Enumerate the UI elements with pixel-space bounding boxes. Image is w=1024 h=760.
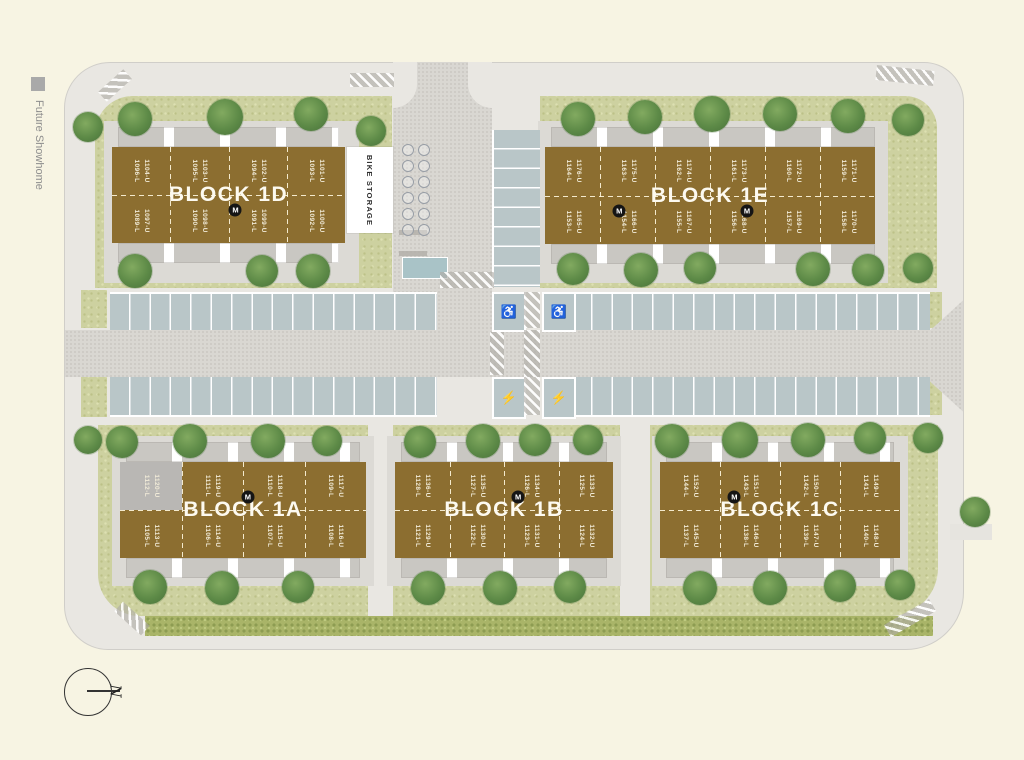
unit-upper-number: 1102-U (258, 159, 268, 182)
tree (683, 571, 717, 605)
unit-lower-number: 1095-L (189, 159, 199, 182)
tree (251, 424, 285, 458)
tree (294, 97, 328, 131)
accessible-parking-stall: ♿ (492, 292, 526, 332)
unit-upper-number: 1100-U (316, 210, 326, 233)
unit-upper-number: 1167-U (683, 210, 693, 233)
unit-lower-number: 1107-L (264, 525, 274, 548)
crosswalk-hatch (524, 292, 540, 328)
small-label-mark (399, 251, 427, 256)
tree (207, 99, 243, 135)
tree (903, 253, 933, 283)
bike-rack-icon (418, 144, 430, 156)
unit-lower-number: 1106-L (202, 525, 212, 548)
unit-upper-number: 1150-U (810, 474, 820, 497)
unit-lower-number: 1111-L (202, 475, 212, 497)
unit-label: 1165-U1153-L (564, 205, 582, 239)
unit-label: 1167-U1155-L (674, 205, 692, 239)
m-marker-badge: M (512, 491, 525, 504)
unit-lower-number: 1123-L (521, 525, 531, 548)
tree (763, 97, 797, 131)
unit-upper-number: 1174-U (683, 159, 693, 182)
unit-upper-number: 1117-U (335, 474, 345, 497)
unit-label: 1175-U1163-L (619, 154, 637, 188)
unit-label: 1120-U1112-L (142, 469, 160, 503)
hedge-strip (145, 616, 933, 636)
unit-upper-number: 1173-U (738, 159, 748, 182)
unit-label: 1172-U1160-L (784, 154, 802, 188)
crosswalk-hatch (490, 332, 504, 375)
unit-label: 1100-U1092-L (307, 204, 325, 238)
tree (411, 571, 445, 605)
unit-label: 1104-U1096-L (132, 154, 150, 188)
unit-upper-number: 1172-U (793, 159, 803, 182)
unit-upper-number: 1097-U (141, 210, 151, 234)
unit-lower-number: 1160-L (782, 159, 792, 182)
unit-lower-number: 1141-L (860, 474, 870, 497)
unit-lower-number: 1125-L (576, 474, 586, 497)
future-showhome-swatch (31, 77, 45, 91)
block-label-1b: BLOCK 1B (444, 498, 563, 522)
unit-upper-number: 1120-U (151, 474, 161, 497)
unit-upper-number: 1101-U (316, 159, 326, 182)
bike-rack-icon (418, 224, 430, 236)
unit-lower-number: 1163-L (617, 159, 627, 182)
unit-label: 1152-U1144-L (681, 469, 699, 503)
unit-upper-number: 1169-U (793, 210, 803, 233)
unit-label: 1169-U1157-L (784, 205, 802, 239)
unit-label: 1114-U1106-L (203, 519, 221, 553)
unit-upper-number: 1145-U (690, 525, 700, 548)
unit-upper-number: 1148-U (870, 525, 880, 548)
unit-lower-number: 1161-L (727, 159, 737, 182)
unit-lower-number: 1096-L (131, 159, 141, 182)
unit-lower-number: 1093-L (306, 159, 316, 182)
unit-label: 1149-U1141-L (861, 469, 879, 503)
unit-upper-number: 1130-U (477, 525, 487, 548)
unit-upper-number: 1133-U (586, 474, 596, 497)
bike-rack-icon (402, 224, 414, 236)
unit-lower-number: 1121-L (412, 525, 422, 548)
tree (246, 255, 278, 287)
unit-upper-number: 1149-U (870, 474, 880, 497)
block-label-1e: BLOCK 1E (651, 184, 769, 208)
unit-lower-number: 1164-L (562, 159, 572, 182)
unit-label: 1136-U1128-L (413, 469, 431, 503)
lawn-patch (81, 377, 107, 417)
tree (796, 252, 830, 286)
unit-label: 1133-U1125-L (577, 469, 595, 503)
bike-storage: BIKE STORAGE (347, 147, 393, 233)
unit-lower-number: 1092-L (306, 210, 316, 233)
tree (483, 571, 517, 605)
tree (852, 254, 884, 286)
unit-lower-number: 1159-L (837, 159, 847, 182)
unit-lower-number: 1140-L (860, 525, 870, 548)
unit-label: 1098-U1090-L (190, 204, 208, 238)
unit-lower-number: 1142-L (800, 474, 810, 497)
m-marker-badge: M (728, 491, 741, 504)
north-compass-icon (64, 668, 112, 716)
tree (684, 252, 716, 284)
parking-column-north (492, 130, 540, 287)
tree (74, 426, 102, 454)
unit-lower-number: 1144-L (680, 474, 690, 497)
m-marker-badge: M (740, 204, 753, 217)
bike-rack-icon (402, 144, 414, 156)
tree (106, 426, 138, 458)
north-label: N (107, 684, 125, 697)
tree (118, 102, 152, 136)
ev-parking-stall: ⚡ (542, 377, 576, 419)
block-label-1d: BLOCK 1D (169, 183, 288, 207)
unit-label: 1146-U1138-L (741, 519, 759, 553)
unit-upper-number: 1103-U (199, 159, 209, 182)
site-plan: Future Showhome N ♿ ♿ ⚡ ⚡ BIKE (0, 0, 1024, 760)
unit-upper-number: 1114-U (212, 525, 222, 548)
tree (356, 116, 386, 146)
wheelchair-icon: ♿ (501, 304, 517, 320)
accessible-parking-stall: ♿ (542, 292, 576, 332)
unit-upper-number: 1175-U (628, 159, 638, 182)
tree (628, 100, 662, 134)
tree (404, 426, 436, 458)
unit-upper-number: 1132-U (586, 525, 596, 548)
unit-lower-number: 1112-L (141, 474, 151, 496)
unit-label: 1132-U1124-L (577, 519, 595, 553)
unit-label: 1170-U1158-L (839, 205, 857, 239)
unit-label: 1113-U1105-L (142, 519, 160, 553)
unit-upper-number: 1118-U (274, 474, 284, 497)
unit-label: 1115-U1107-L (265, 519, 283, 553)
unit-upper-number: 1151-U (750, 474, 760, 497)
bike-rack-icon (418, 208, 430, 220)
road-horizontal (65, 330, 962, 377)
unit-label: 1131-U1123-L (522, 519, 540, 553)
tree (118, 254, 152, 288)
unit-upper-number: 1129-U (422, 525, 432, 548)
unit-upper-number: 1113-U (151, 525, 161, 548)
unit-lower-number: 1153-L (562, 211, 572, 234)
tree (312, 426, 342, 456)
unit-label: 1130-U1122-L (468, 519, 486, 553)
unit-lower-number: 1157-L (782, 211, 792, 234)
unit-upper-number: 1146-U (750, 525, 760, 548)
crosswalk-hatch (524, 377, 540, 415)
tree (205, 571, 239, 605)
unit-lower-number: 1158-L (837, 211, 847, 234)
unit-label: 1145-U1137-L (681, 519, 699, 553)
unit-upper-number: 1170-U (848, 210, 858, 233)
unit-lower-number: 1109-L (325, 474, 335, 497)
unit-upper-number: 1119-U (212, 474, 222, 497)
unit-lower-number: 1091-L (248, 210, 258, 233)
tree (557, 253, 589, 285)
unit-lower-number: 1137-L (680, 525, 690, 548)
unit-lower-number: 1105-L (141, 525, 151, 548)
tree (892, 104, 924, 136)
tree (573, 425, 603, 455)
unit-label: 1116-U1108-L (326, 519, 344, 553)
unit-lower-number: 1128-L (412, 474, 422, 497)
tree (694, 96, 730, 132)
unit-upper-number: 1131-U (531, 525, 541, 548)
unit-upper-number: 1152-U (690, 474, 700, 497)
tree (624, 253, 658, 287)
unit-lower-number: 1162-L (672, 159, 682, 182)
unit-label: 1099-U1091-L (249, 204, 267, 238)
bike-rack-icon (402, 208, 414, 220)
parking-row-west-upper (110, 292, 437, 330)
unit-upper-number: 1136-U (422, 474, 432, 497)
unit-label: 1147-U1139-L (801, 519, 819, 553)
unit-upper-number: 1104-U (141, 159, 151, 182)
unit-upper-number: 1115-U (274, 525, 284, 548)
ev-parking-stall: ⚡ (492, 377, 526, 419)
unit-upper-number: 1135-U (477, 474, 487, 497)
tree (913, 423, 943, 453)
bike-rack-icon (418, 160, 430, 172)
unit-upper-number: 1099-U (258, 210, 268, 234)
unit-lower-number: 1089-L (131, 210, 141, 233)
tree (561, 102, 595, 136)
unit-lower-number: 1138-L (740, 525, 750, 548)
bike-rack-icon (418, 176, 430, 188)
unit-lower-number: 1143-L (740, 474, 750, 497)
tree (133, 570, 167, 604)
unit-lower-number: 1122-L (467, 525, 477, 548)
parking-row-west-lower (110, 377, 437, 417)
tree (824, 570, 856, 602)
unit-upper-number: 1116-U (335, 525, 345, 548)
unit-upper-number: 1165-U (573, 210, 583, 233)
wheelchair-icon: ♿ (551, 304, 567, 320)
tree (554, 571, 586, 603)
bike-rack-icon (402, 176, 414, 188)
tree (885, 570, 915, 600)
tree (791, 423, 825, 457)
m-marker-badge: M (241, 491, 254, 504)
future-showhome-label: Future Showhome (33, 100, 45, 190)
ev-charger-icon: ⚡ (551, 390, 567, 406)
unit-lower-number: 1110-L (264, 474, 274, 496)
tree (655, 424, 689, 458)
unit-lower-number: 1090-L (189, 210, 199, 233)
unit-lower-number: 1155-L (672, 211, 682, 234)
tree (282, 571, 314, 603)
unit-lower-number: 1108-L (325, 525, 335, 548)
unit-upper-number: 1166-U (628, 210, 638, 233)
tree (960, 497, 990, 527)
unit-lower-number: 1127-L (467, 474, 477, 497)
parking-row-east-upper (572, 292, 930, 330)
unit-lower-number: 1156-L (727, 211, 737, 234)
ev-charger-icon: ⚡ (501, 390, 517, 406)
unit-label: 1097-U1089-L (132, 204, 150, 238)
unit-upper-number: 1098-U (199, 210, 209, 234)
bike-rack-icon (402, 160, 414, 172)
unit-upper-number: 1171-U (848, 159, 858, 182)
crosswalk-hatch (440, 272, 494, 288)
unit-label: 1148-U1140-L (861, 519, 879, 553)
m-marker-badge: M (613, 204, 626, 217)
unit-lower-number: 1094-L (248, 159, 258, 182)
unit-upper-number: 1134-U (531, 474, 541, 497)
unit-label: 1129-U1121-L (413, 519, 431, 553)
crosswalk-hatch (524, 330, 540, 377)
unit-label: 1101-U1093-L (307, 154, 325, 188)
tree (73, 112, 103, 142)
m-marker-badge: M (229, 203, 242, 216)
tree (722, 422, 758, 458)
unit-upper-number: 1147-U (810, 525, 820, 548)
tree (519, 424, 551, 456)
bike-storage-label: BIKE STORAGE (366, 154, 375, 225)
unit-upper-number: 1176-U (573, 159, 583, 182)
tree (173, 424, 207, 458)
lawn-patch (81, 290, 107, 328)
parking-row-east-lower (572, 377, 930, 417)
unit-label: 1117-U1109-L (326, 469, 344, 503)
corner-crosswalk-hatch (350, 73, 394, 87)
bike-rack-icon (402, 192, 414, 204)
unit-lower-number: 1124-L (576, 525, 586, 548)
tree (466, 424, 500, 458)
tree (296, 254, 330, 288)
tree (753, 571, 787, 605)
unit-lower-number: 1139-L (800, 525, 810, 548)
unit-label: 1171-U1159-L (839, 154, 857, 188)
bike-rack-icon (418, 192, 430, 204)
tree (831, 99, 865, 133)
tree (854, 422, 886, 454)
unit-label: 1176-U1164-L (564, 154, 582, 188)
